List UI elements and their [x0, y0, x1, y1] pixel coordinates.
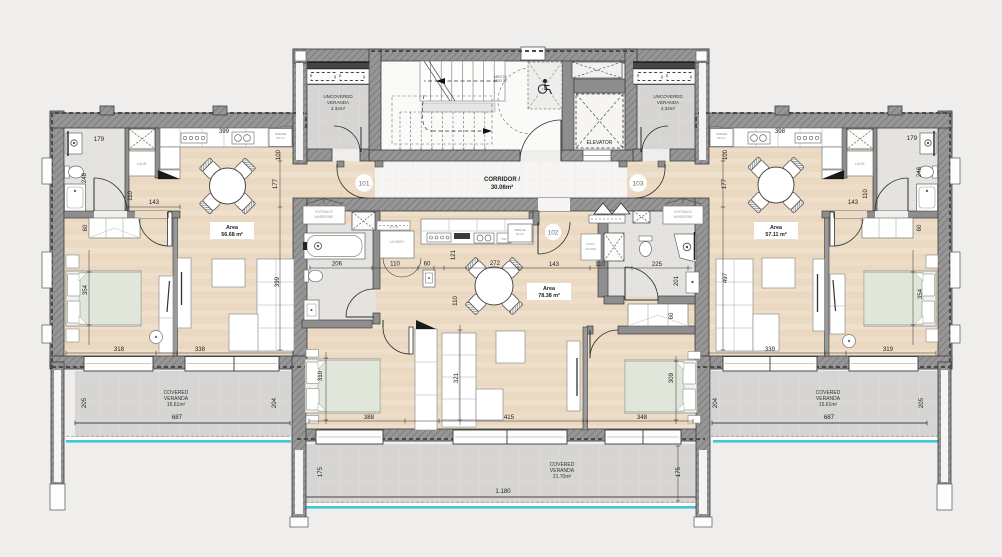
svg-text:WARDROBE: WARDROBE: [674, 215, 693, 219]
svg-text:175: 175: [317, 466, 324, 477]
svg-text:205: 205: [81, 397, 88, 408]
svg-text:179: 179: [907, 135, 918, 142]
svg-text:57.11 m²: 57.11 m²: [765, 232, 786, 238]
svg-text:LAUNDRY: LAUNDRY: [389, 240, 405, 244]
svg-text:102: 102: [548, 230, 559, 237]
svg-text:Area: Area: [770, 225, 783, 231]
svg-text:VERANDA: VERANDA: [657, 100, 680, 105]
svg-text:248: 248: [916, 166, 923, 177]
svg-text:60: 60: [424, 261, 431, 268]
svg-text:56.68 m²: 56.68 m²: [221, 232, 243, 238]
svg-text:399: 399: [219, 128, 230, 135]
svg-text:ENTRANCE: ENTRANCE: [674, 210, 692, 214]
svg-text:319: 319: [883, 346, 894, 353]
svg-text:310: 310: [317, 370, 324, 381]
svg-text:78.38 m²: 78.38 m²: [538, 293, 560, 299]
svg-text:206: 206: [332, 261, 343, 268]
svg-text:LAUN.: LAUN.: [137, 162, 148, 166]
svg-text:1.180: 1.180: [495, 488, 511, 495]
svg-text:103: 103: [632, 181, 643, 188]
svg-text:338: 338: [195, 346, 206, 353]
svg-text:143: 143: [149, 199, 160, 206]
svg-text:WARDROBE: WARDROBE: [315, 215, 334, 219]
svg-text:354: 354: [917, 288, 924, 299]
svg-text:687: 687: [824, 414, 835, 421]
svg-text:ENTRANCE: ENTRANCE: [315, 210, 333, 214]
svg-text:100: 100: [275, 149, 282, 160]
svg-text:248: 248: [81, 172, 88, 183]
svg-text:60: 60: [82, 224, 89, 231]
svg-text:ELEVATOR: ELEVATOR: [587, 140, 613, 146]
svg-text:15.61m²: 15.61m²: [167, 402, 186, 408]
svg-text:318: 318: [114, 346, 125, 353]
svg-text:60: 60: [668, 312, 675, 319]
svg-text:CORRIDOR /: CORRIDOR /: [484, 177, 520, 183]
svg-text:18DG 30: 18DG 30: [494, 79, 507, 83]
svg-text:110: 110: [127, 191, 134, 201]
svg-text:UNCOVERED: UNCOVERED: [653, 94, 683, 99]
svg-text:2 = 5: 2 = 5: [389, 225, 397, 229]
svg-text:100: 100: [722, 149, 729, 160]
svg-text:143: 143: [848, 199, 859, 206]
svg-text:388: 388: [364, 414, 375, 421]
svg-text:4.32m²: 4.32m²: [331, 106, 346, 111]
svg-text:121: 121: [450, 249, 457, 260]
svg-text:415: 415: [504, 414, 515, 421]
svg-text:201: 201: [673, 275, 680, 286]
svg-text:UNCOVERED: UNCOVERED: [323, 94, 353, 99]
svg-text:Area: Area: [543, 286, 556, 292]
svg-text:177: 177: [721, 178, 728, 189]
svg-text:30.06m²: 30.06m²: [491, 184, 513, 191]
svg-text:60 cm: 60 cm: [717, 136, 726, 140]
svg-text:143: 143: [549, 261, 560, 268]
svg-text:WARDR.: WARDR.: [585, 247, 597, 251]
svg-text:DW: DW: [502, 237, 507, 241]
svg-text:399: 399: [274, 276, 281, 287]
svg-text:15.61m²: 15.61m²: [819, 402, 838, 408]
svg-text:398: 398: [775, 128, 786, 135]
svg-text:VERANDA: VERANDA: [327, 100, 350, 105]
svg-text:LAUN.: LAUN.: [855, 162, 866, 166]
svg-text:110: 110: [452, 296, 459, 306]
svg-text:204: 204: [271, 397, 278, 408]
svg-text:ENTR.: ENTR.: [587, 242, 596, 246]
svg-text:272: 272: [490, 260, 501, 267]
svg-text:225: 225: [652, 261, 663, 268]
svg-text:179: 179: [94, 136, 105, 143]
svg-text:110: 110: [595, 261, 605, 268]
svg-text:110: 110: [862, 189, 869, 199]
svg-text:204: 204: [712, 397, 719, 408]
svg-text:60 cm: 60 cm: [276, 136, 285, 140]
svg-text:Area: Area: [226, 225, 239, 231]
svg-text:497: 497: [722, 272, 729, 283]
svg-text:4.32m²: 4.32m²: [661, 106, 676, 111]
svg-text:175: 175: [675, 466, 682, 477]
svg-text:60 cm: 60 cm: [516, 232, 525, 236]
svg-text:309: 309: [668, 372, 675, 383]
svg-text:60: 60: [916, 224, 923, 231]
svg-text:687: 687: [172, 414, 183, 421]
svg-text:321: 321: [453, 372, 460, 383]
svg-text:354: 354: [82, 284, 89, 295]
svg-text:101: 101: [358, 181, 369, 188]
svg-text:177: 177: [272, 178, 279, 189]
svg-text:21.70m²: 21.70m²: [553, 474, 572, 480]
svg-text:110: 110: [390, 261, 400, 268]
svg-text:339: 339: [765, 346, 776, 353]
svg-text:348: 348: [637, 414, 648, 421]
svg-text:205: 205: [918, 397, 925, 408]
